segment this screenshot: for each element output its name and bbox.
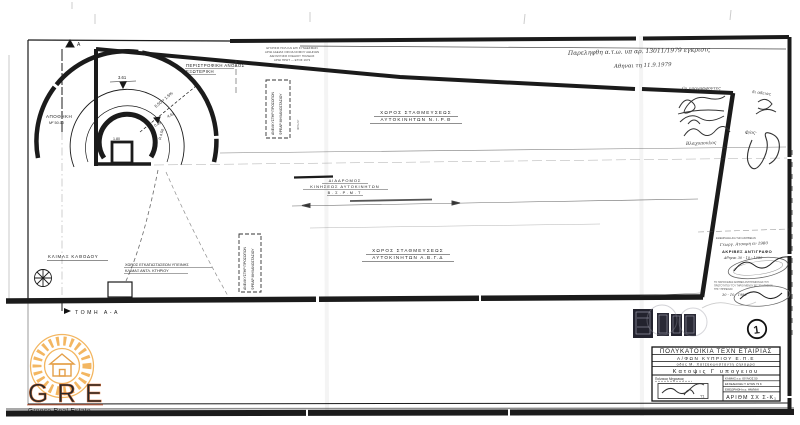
dim-r450: R 4.50: [158, 128, 165, 140]
info-row-1: ΚΛΙΜΑΞ ε.α. ΙΟΥΛΙΟΣ 50: [725, 376, 758, 380]
margin-note-1: δι αδειας: [752, 89, 772, 96]
copy-head-note: ΕΘΕΩΡΗΘΗ ΔΙΑ ΤΗΝ ΑΚΡΙΒΕΙΑΝ: [716, 236, 756, 240]
title-block: ΠΟΛΥΚΑΤΟΙΚΙΑ ΤΕΧΝ ΕΤΑΙΡΙΑΣ Α/ΦΩΝ ΚΥΠΡΙΟΥ…: [652, 347, 780, 401]
wc-label-2: ΚΛΙΜΑΞ ΑΝΤΛ. ΚΤΗΡΙΟΥ: [125, 269, 169, 273]
logo-subtext: Greece Real Estate: [28, 408, 91, 415]
storage-label: ΑΠΟΘΗΚΗ: [46, 114, 72, 119]
wc-label-1: ΧΩΡΟΣ ΕΓΚΑΤΑΣΤΑΣΕΩΝ ΥΓΙΕΙΝΗΣ: [125, 263, 189, 267]
ramp-label-2: ΕΞΩΤΕΡΙΚΗ: [186, 69, 214, 74]
section-label: ΤΟΜΗ Α-Α: [75, 310, 120, 316]
lift-shaft-box-1: ΑΝΕΛΚΥΣΤΗΡ ΠΡΟΣΩΠΩΝ ΦΡΕΑΡ ΜΗΧΑΝΟΣΤΑΣΙΟΥ …: [266, 80, 300, 138]
drawing-canvas: ΑΝΕΛΚΥΣΤΗΡ ΠΡΟΣΩΠΩΝ ΦΡΕΑΡ ΜΗΧΑΝΟΣΤΑΣΙΟΥ …: [0, 0, 800, 425]
title-row-2: Α/ΦΩΝ ΚΥΠΡΙΟΥ Ε.Π.Ε: [677, 356, 755, 361]
fold-creases: [326, 36, 642, 416]
section-marker-label: Α: [77, 42, 81, 48]
shaft1-text-1: ΑΝΕΛΚΥΣΤΗΡ ΠΡΟΣΩΠΩΝ: [271, 92, 275, 135]
corridor-label-2: ΚΙΝΗΣΕΩΣ ΑΥΤΟΚΙΝΗΤΩΝ: [310, 184, 379, 189]
file-note: Φ/ος·: [745, 130, 757, 136]
blueprint-sheet: ΑΝΕΛΚΥΣΤΗΡ ΠΡΟΣΩΠΩΝ ΦΡΕΑΡ ΜΗΧΑΝΟΣΤΑΣΙΟΥ …: [0, 0, 800, 425]
dim-550: 5.50 + 1.5%: [153, 90, 174, 108]
permit-note-4: ΑΡΙΘ ΠΡΩΤ — ΕΤΟΣ 1973: [274, 58, 311, 62]
dim-361: 3.61: [118, 75, 127, 80]
signature-scribbles: [678, 96, 730, 136]
gre-logo: GRE Greece Real Estate: [27, 335, 111, 415]
engineer-label: Πολιτικος Μηχανικος: [655, 377, 685, 381]
title-row-4: Κατοψις Γ υπογειου: [673, 369, 760, 375]
corridor-label-3: Β.Σ.Ρ.Μ.Τ: [328, 191, 363, 195]
shaft2-text-2: ΦΡΕΑΡ ΜΗΧΑΝΟΣΤΑΣΙΟΥ: [251, 248, 255, 290]
revenue-stamps: [633, 302, 756, 338]
shaft1-text-2: ΦΡΕΑΡ ΜΗΧΑΝΟΣΤΑΣΙΟΥ: [279, 93, 283, 135]
fan-symbol: [35, 270, 52, 287]
house-icon: [50, 354, 74, 376]
copy-fine-1: ΤΟ ΠΑΡΟΝ ΕΙΝΑΙ ΑΚΡΙΒΕΣ ΑΝΤΙΓΡΑΦΟΝ ΕΚ ΤΟΥ: [714, 281, 769, 284]
sheet-number: 1: [753, 324, 761, 337]
drawing-number: ΑΡΙΘΜ ΣΧ Σ-Κ₁: [726, 395, 777, 401]
info-row-2: ΕΣΧΕΔΙΑΣΘΗ Τ. ΕΤΩΝ 73 Κ: [725, 382, 762, 386]
copy-hand-name: Γεωργ. Ατσαρη εν 1980: [719, 240, 769, 247]
registration-marks: [72, 2, 731, 24]
dim-180: 1.80: [113, 137, 120, 141]
pit-box: [108, 282, 132, 297]
ground-band: [6, 297, 703, 301]
parking-a-label-2: ΑΥΤΟΚΙΝΗΤΩΝ Ν.Ι.Ρ.Θ: [380, 117, 451, 122]
stair-label: ΚΛΙΜΑΞ ΚΑΘΟΔΟΥ: [48, 254, 99, 259]
engineer-year: '71: [700, 395, 705, 399]
copy-certify: ΑΚΡΙΒΕΣ ΑΝΤΙΓΡΑΦΟ: [722, 249, 772, 254]
storage-area: Μ² 50.00: [49, 121, 64, 125]
ramp-label-1: ΠΕΡΙΣΤΡΟΦΙΚΗ ΑΝΟΔΟΣ: [186, 63, 245, 68]
corridor-label-1: ΔΙΑΔΡΟΜΟΣ: [329, 178, 362, 183]
copy-fine-3: ΤΗΣ ΥΠΗΡΕΣΙΑΣ: [714, 288, 733, 291]
logo-text: GRE: [28, 378, 111, 408]
lift-shaft-box-2: ΑΝΕΛΚΥΣΤΗΡ ΠΡΟΣΩΠΩΝ ΦΡΕΑΡ ΜΗΧΑΝΟΣΤΑΣΙΟΥ: [239, 234, 261, 292]
sheet-number-badge: 1: [748, 320, 766, 338]
dim-461: 4.61: [166, 110, 176, 118]
signer-name: Βλαχοπουλος: [685, 141, 717, 147]
signers-note: Οι υπογραφοντες: [682, 86, 721, 92]
shaft2-text-1: ΑΝΕΛΚΥΣΤΗΡ ΠΡΟΣΩΠΩΝ: [243, 247, 247, 290]
parking-b-label-1: ΧΩΡΟΣ ΣΤΑΘΜΕΥΣΕΩΣ: [372, 248, 444, 253]
parking-a-label-1: ΧΩΡΟΣ ΣΤΑΘΜΕΥΣΕΩΣ: [380, 110, 452, 115]
shaft1-side-label: ΦΡΕΑΡ: [296, 120, 300, 130]
parking-b-label-2: ΑΥΤΟΚΙΝΗΤΩΝ Α.Β.Γ.Δ: [372, 255, 443, 260]
info-row-3: ΕΘΕΩΡΗΘΗ κ.α. ΗΜ/ΝΙΑΙ: [725, 388, 759, 392]
title-row-1: ΠΟΛΥΚΑΤΟΙΚΙΑ ΤΕΧΝ ΕΤΑΙΡΙΑΣ: [660, 348, 772, 355]
title-row-3: οδος Μ. Χατζηκωνσταντη ζηλαμρα: [677, 362, 756, 366]
received-date: Αθηναι τη 11.9.1979: [613, 62, 672, 70]
handwritten-annotations: Παρεληφθη α.τ.ω. υπ αρ. 13011/1979 εγκρι…: [567, 46, 779, 168]
